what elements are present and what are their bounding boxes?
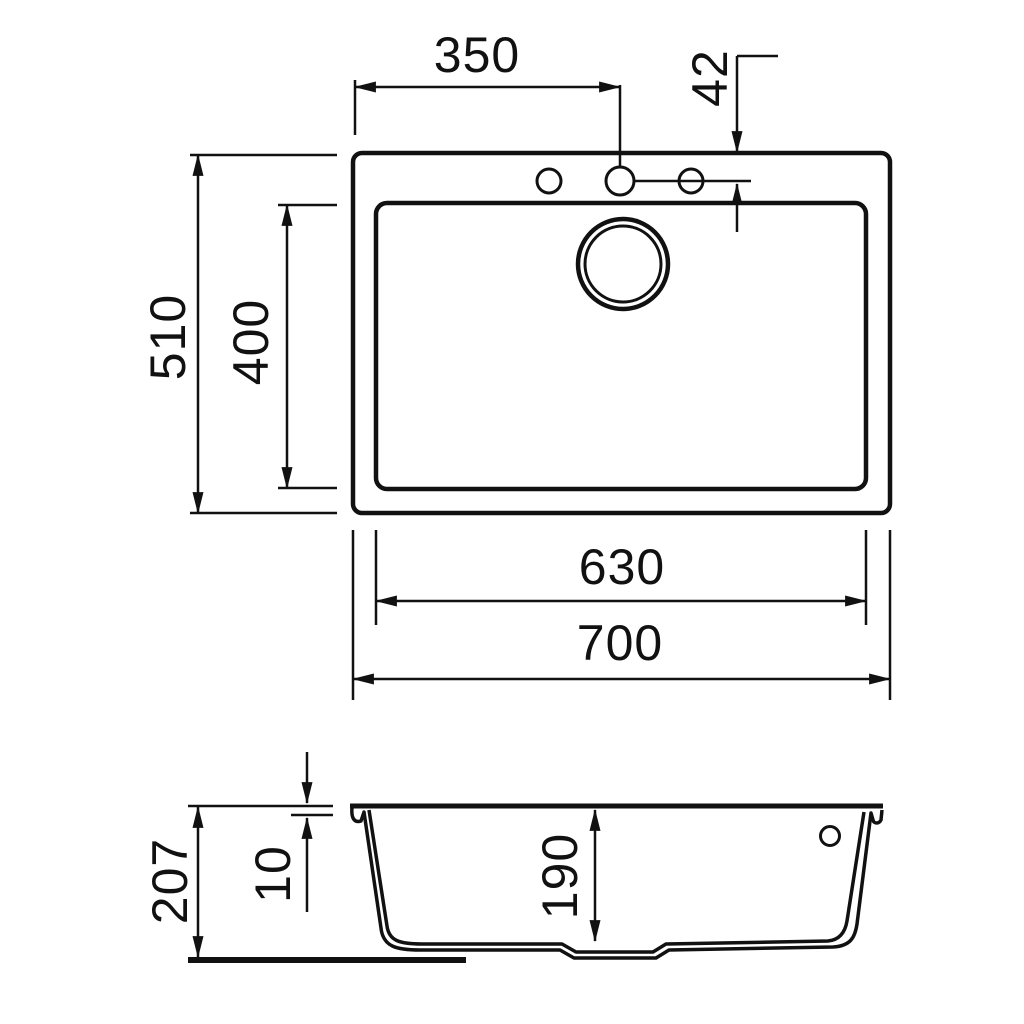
dim-350-label: 350 — [434, 27, 520, 83]
dim-10-label: 10 — [245, 845, 301, 903]
dim-bowl-depth-section: 190 — [532, 810, 595, 941]
sink-dimension-drawing: 350 42 510 400 630 700 — [0, 0, 1024, 1024]
tap-hole-left — [537, 169, 561, 193]
dim-overall-height: 207 — [142, 806, 333, 957]
overflow-hole-section — [821, 827, 840, 846]
dim-207-label: 207 — [142, 838, 198, 924]
drain-outer-circle — [578, 219, 668, 309]
dim-190-label: 190 — [532, 833, 588, 919]
section-outer-profile — [352, 808, 882, 958]
dim-bowl-width: 630 — [376, 530, 866, 625]
dim-630-label: 630 — [579, 539, 665, 595]
drain-inner-circle — [585, 226, 661, 302]
dim-bowl-depth-plan: 400 — [223, 205, 337, 488]
section-inner-profile — [369, 810, 864, 952]
dim-700-label: 700 — [577, 615, 663, 671]
technical-drawing-canvas: 350 42 510 400 630 700 — [0, 0, 1024, 1024]
bowl-outline-plan — [376, 203, 866, 489]
dim-rim-height: 10 — [245, 752, 333, 912]
dim-42-label: 42 — [682, 49, 738, 107]
sink-outline-plan — [353, 153, 890, 513]
dim-400-label: 400 — [223, 299, 279, 385]
plan-view — [353, 85, 890, 513]
dim-510-label: 510 — [140, 294, 196, 380]
dim-tap-offset-x: 350 — [355, 27, 620, 135]
tap-hole-center — [606, 167, 634, 195]
